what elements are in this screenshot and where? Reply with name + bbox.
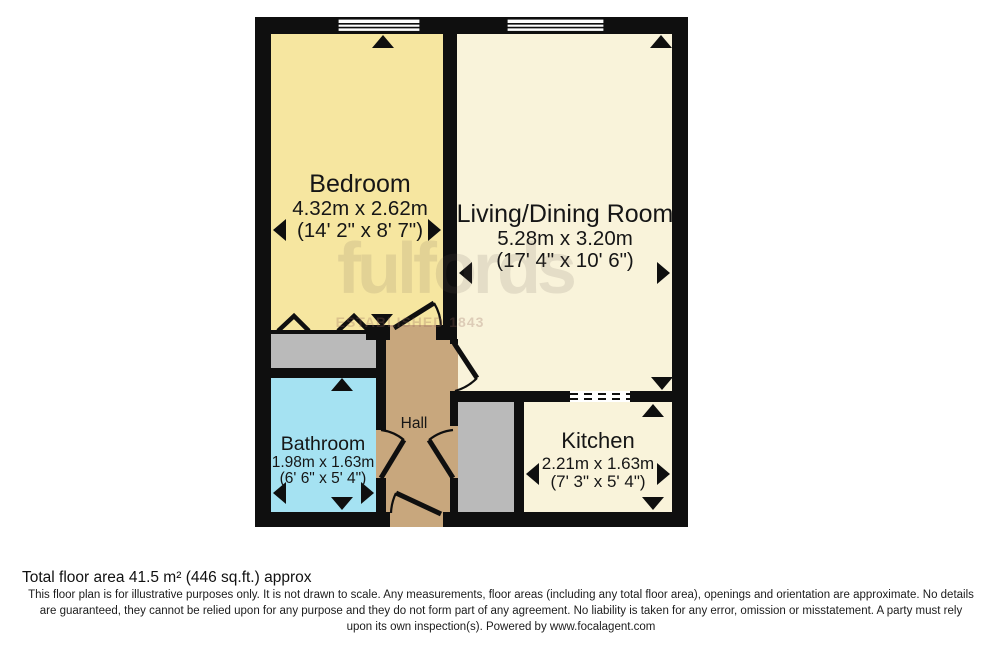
wall-hall-left-lower	[376, 478, 386, 512]
entry-doorway-floor	[390, 512, 443, 527]
window-bedroom	[338, 19, 421, 33]
total-floor-area: Total floor area 41.5 m² (446 sq.ft.) ap…	[22, 569, 311, 587]
window-icon	[507, 19, 605, 33]
floorplan-drawing: Bedroom 4.32m x 2.62m (14' 2" x 8' 7") L…	[0, 0, 1003, 560]
wall-wardrobe-bathroom	[255, 368, 386, 378]
wall-bottom-left	[255, 512, 390, 527]
wall-hall-right-lower	[450, 478, 458, 512]
wall-kitchen-top-right	[630, 391, 688, 402]
bathroom-name: Bathroom	[281, 433, 366, 455]
kitchen-metric: 2.21m x 1.63m	[542, 454, 654, 473]
kitchen-name: Kitchen	[561, 428, 634, 453]
wall-right	[672, 17, 688, 527]
bathroom-metric: 1.98m x 1.63m	[272, 454, 375, 471]
wardrobe-floor	[271, 334, 376, 368]
bedroom-metric: 4.32m x 2.62m	[292, 197, 428, 220]
wall-bottom-right	[443, 512, 688, 527]
bedroom-name: Bedroom	[309, 170, 410, 198]
watermark-brand: fulfords	[337, 229, 575, 309]
wall-wardrobe-front	[271, 330, 376, 334]
kitchen-imperial: (7' 3" x 5' 4")	[550, 472, 645, 491]
wall-hall-left-upper	[376, 339, 386, 430]
wall-top	[255, 17, 688, 34]
hall-name: Hall	[401, 415, 428, 432]
bathroom-imperial: (6' 6" x 5' 4")	[280, 470, 367, 487]
wall-kitchen-top-left	[450, 391, 570, 402]
wall-hall-right-mid	[450, 402, 458, 426]
living-name: Living/Dining Room	[457, 200, 674, 228]
window-icon	[338, 19, 421, 33]
watermark-tagline: ESTABLISHED 1843	[336, 314, 485, 330]
wall-left	[255, 17, 271, 527]
floorplan-page: Bedroom 4.32m x 2.62m (14' 2" x 8' 7") L…	[0, 0, 1003, 667]
window-living	[507, 19, 605, 33]
disclaimer-text: This floor plan is for illustrative purp…	[26, 588, 976, 635]
open-divider-gap	[570, 391, 630, 402]
wall-kitchen-left	[514, 402, 524, 512]
cupboard-floor	[458, 402, 514, 512]
open-divider	[570, 391, 630, 402]
cupboard-doorway-floor	[450, 426, 458, 478]
